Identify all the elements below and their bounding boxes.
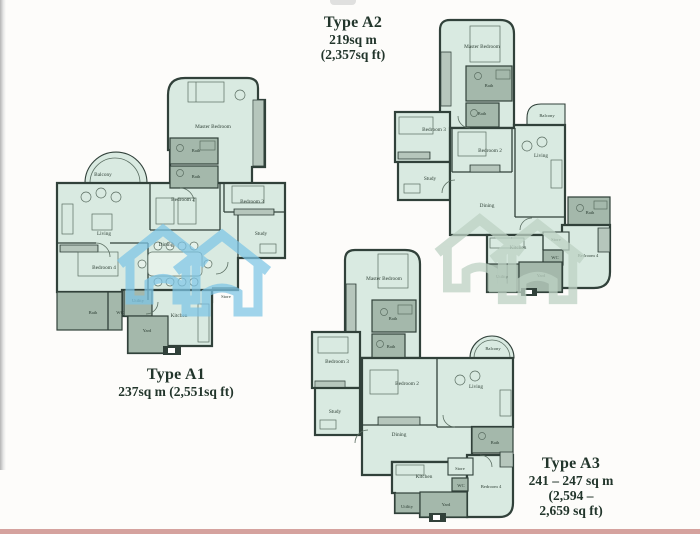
room-label: Balcony bbox=[539, 113, 555, 118]
room-label: Bedroom 3 bbox=[240, 199, 264, 205]
room-label: Bath bbox=[485, 83, 494, 88]
plan-a1-area-line: 237sq m (2,551sq ft) bbox=[91, 384, 261, 399]
floorplans-canvas: Master Bedroom Bath Bath Balcony Bedroom… bbox=[0, 0, 700, 534]
room-label: Yard bbox=[442, 502, 451, 507]
plan-a2-area-line: (2,357sq ft) bbox=[294, 47, 412, 62]
plan-a2-area-line: 219sq m bbox=[294, 32, 412, 47]
room-label: Living bbox=[534, 153, 548, 159]
room-label: Dining bbox=[392, 432, 407, 438]
a2-living-dining-body bbox=[450, 125, 565, 235]
floor-plan-a3: Master Bedroom Bath Bath Bedroom 3 Balco… bbox=[312, 250, 514, 522]
room-label: Bath bbox=[192, 174, 201, 179]
room-label: Bedroom 3 bbox=[325, 359, 349, 365]
room-label: Balcony bbox=[94, 172, 112, 178]
room-label: Utility bbox=[401, 504, 414, 509]
room-label: Living bbox=[97, 231, 111, 237]
room-label: Bath bbox=[586, 210, 595, 215]
plan-a2-title-block: Type A2 219sq m (2,357sq ft) bbox=[294, 14, 412, 62]
room-label: Kitchen bbox=[416, 474, 433, 480]
plan-a3-title-block: Type A3 241 – 247 sq m (2,594 – 2,659 sq… bbox=[501, 455, 641, 518]
scan-edge-bottom bbox=[0, 529, 700, 534]
plan-a3-area-line: 241 – 247 sq m bbox=[501, 473, 641, 488]
room-label: Store bbox=[221, 294, 231, 299]
scan-edge-left bbox=[0, 0, 6, 470]
room-label: Bath bbox=[89, 310, 98, 315]
plan-a3-area-line: 2,659 sq ft) bbox=[501, 503, 641, 518]
room-label: Study bbox=[255, 231, 268, 237]
room-label: Bath bbox=[491, 440, 500, 445]
room-label: WC bbox=[457, 483, 464, 488]
room-label: Balcony bbox=[485, 346, 501, 351]
room-label: Bedroom 4 bbox=[481, 484, 502, 489]
scan-smudge-top bbox=[330, 0, 356, 5]
a1-closet-hatch bbox=[253, 100, 264, 166]
room-label: Master Bedroom bbox=[195, 124, 232, 130]
a1-yard bbox=[128, 316, 168, 353]
room-label: Bedroom 2 bbox=[171, 197, 195, 203]
room-label: Yard bbox=[143, 328, 152, 333]
plan-a2-title: Type A2 bbox=[294, 14, 412, 32]
plan-a3-area-line: (2,594 – bbox=[501, 488, 641, 503]
a3-utility bbox=[395, 493, 420, 513]
floorplan-sheet: Master Bedroom Bath Bath Balcony Bedroom… bbox=[0, 0, 700, 534]
room-label: Dining bbox=[480, 203, 495, 209]
room-label: Study bbox=[329, 409, 342, 415]
room-label: WC bbox=[116, 310, 123, 315]
plan-a1-title: Type A1 bbox=[91, 366, 261, 384]
plan-a1-title-block: Type A1 237sq m (2,551sq ft) bbox=[91, 366, 261, 399]
room-label: Bedroom 2 bbox=[395, 381, 419, 387]
room-label: Study bbox=[424, 176, 437, 182]
room-label: Master Bedroom bbox=[464, 44, 501, 50]
a3-closet-hatch bbox=[346, 284, 356, 334]
room-label: Store bbox=[455, 466, 465, 471]
room-label: Bath bbox=[192, 148, 201, 153]
room-label: Bedroom 3 bbox=[422, 127, 446, 133]
room-label: Bedroom 2 bbox=[478, 148, 502, 154]
room-label: Bath bbox=[387, 344, 396, 349]
a2-closet-hatch bbox=[441, 52, 451, 106]
room-label: Bath bbox=[478, 111, 487, 116]
a1-balcony-bay bbox=[85, 152, 147, 183]
room-label: WC bbox=[551, 255, 558, 260]
room-label: Bath bbox=[389, 316, 398, 321]
plan-a3-title: Type A3 bbox=[501, 455, 641, 473]
room-label: Bedroom 4 bbox=[92, 265, 116, 271]
room-label: Master Bedroom bbox=[366, 276, 403, 282]
room-label: Living bbox=[469, 384, 483, 390]
